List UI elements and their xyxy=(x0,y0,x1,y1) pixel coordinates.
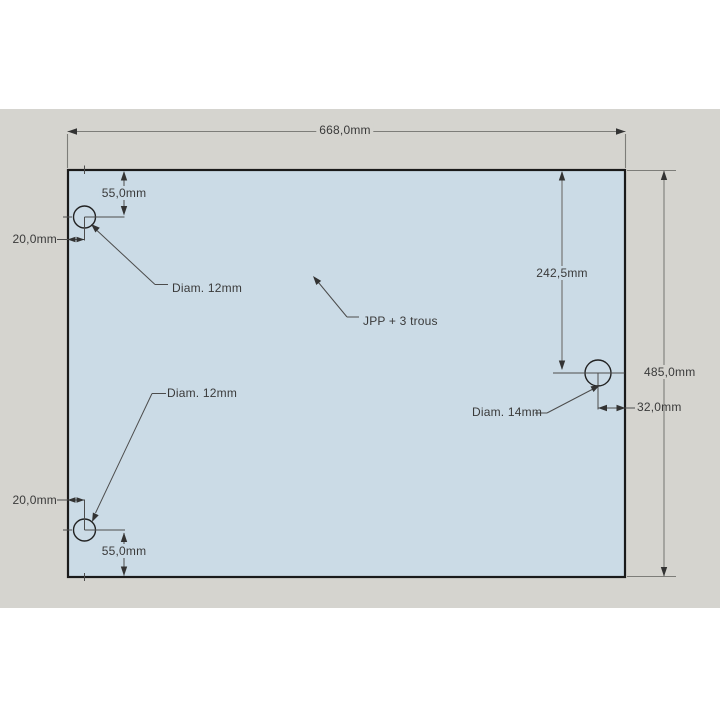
dim-right-hole-top-label: 242,5mm xyxy=(534,266,589,280)
drawing-canvas: 668,0mm 485,0mm 242,5mm 32,0mm 55,0mm 20… xyxy=(0,0,720,720)
dim-width-label: 668,0mm xyxy=(316,123,373,137)
dim-bottom-hole-left-label: 20,0mm xyxy=(12,493,57,507)
plate-outline xyxy=(68,170,625,577)
plate-drawing-svg xyxy=(0,0,720,720)
annotation-label: JPP + 3 trous xyxy=(363,314,438,328)
arrow-height-bottom xyxy=(661,567,667,577)
arrow-width-right xyxy=(616,128,626,135)
hole-top-left-diameter-label: Diam. 12mm xyxy=(172,281,242,295)
arrow-height-top xyxy=(661,171,667,181)
dim-right-hole-edge-label: 32,0mm xyxy=(637,400,682,414)
arrow-width-left xyxy=(68,128,78,135)
dim-bottom-hole-bottom-label: 55,0mm xyxy=(100,544,149,558)
dim-top-hole-left-label: 20,0mm xyxy=(12,232,57,246)
dim-top-hole-top-label: 55,0mm xyxy=(100,186,149,200)
dim-height-label: 485,0mm xyxy=(641,365,698,379)
hole-right-diameter-label: Diam. 14mm xyxy=(472,405,542,419)
hole-bottom-left-diameter-label: Diam. 12mm xyxy=(167,386,237,400)
